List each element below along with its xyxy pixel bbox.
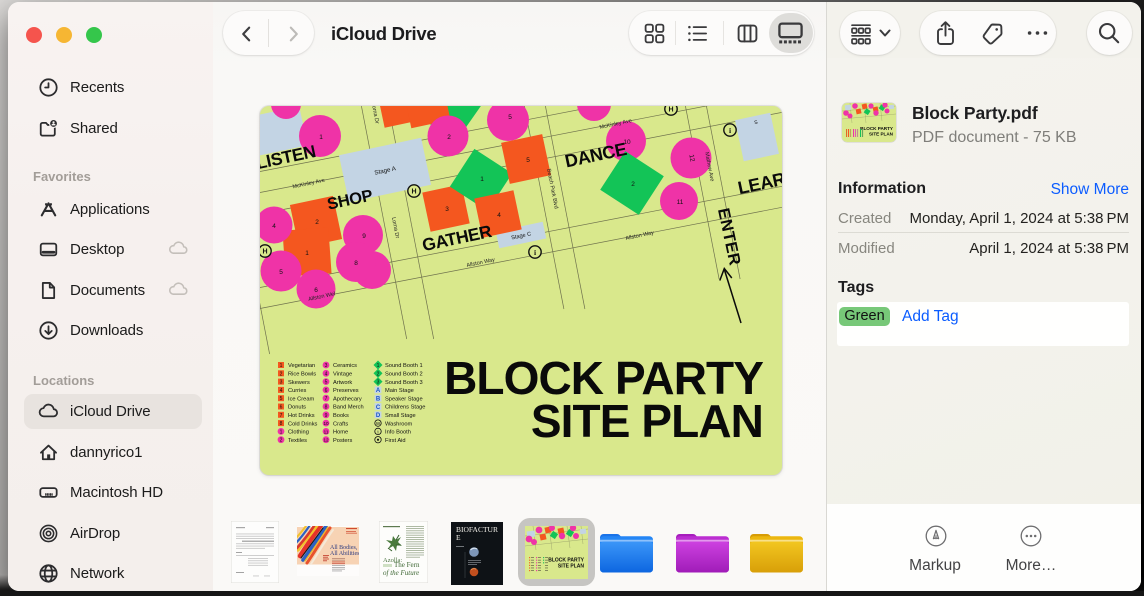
svg-text:Skewers: Skewers <box>288 380 310 386</box>
svg-text:E: E <box>456 533 461 542</box>
svg-text:H: H <box>411 189 416 196</box>
svg-text:i: i <box>534 248 536 257</box>
svg-text:Donuts: Donuts <box>288 405 306 411</box>
svg-text:Sound Booth 1: Sound Booth 1 <box>385 363 423 369</box>
svg-text:SITE PLAN: SITE PLAN <box>531 395 763 447</box>
svg-text:Sound Booth 2: Sound Booth 2 <box>385 372 423 378</box>
svg-text:First Aid: First Aid <box>385 438 406 444</box>
svg-text:Apothecary: Apothecary <box>333 396 362 402</box>
svg-text:Info Booth: Info Booth <box>385 430 411 436</box>
svg-text:Curries: Curries <box>288 388 306 394</box>
svg-text:6: 6 <box>325 388 328 394</box>
svg-text:W: W <box>376 421 381 426</box>
svg-text:12: 12 <box>323 438 329 443</box>
svg-text:Hot Drinks: Hot Drinks <box>288 413 315 419</box>
svg-text:5: 5 <box>280 396 283 402</box>
svg-text:Crafts: Crafts <box>333 421 348 427</box>
svg-text:BLOCK PARTY: BLOCK PARTY <box>860 126 893 131</box>
svg-text:7: 7 <box>325 396 328 402</box>
svg-text:orna Dr: orna Dr <box>370 106 379 125</box>
svg-text:8: 8 <box>325 405 328 411</box>
svg-text:2: 2 <box>631 181 635 188</box>
svg-text:11: 11 <box>677 199 684 206</box>
svg-text:Lorna Dr: Lorna Dr <box>390 217 400 239</box>
svg-text:Rice Bowls: Rice Bowls <box>288 372 316 378</box>
svg-text:5: 5 <box>279 269 283 276</box>
svg-text:1: 1 <box>280 363 283 369</box>
svg-text:1: 1 <box>280 429 283 435</box>
svg-text:4: 4 <box>280 388 283 394</box>
svg-text:All Abilities: All Abilities <box>330 551 359 557</box>
svg-text:Band Merch: Band Merch <box>333 405 364 411</box>
svg-text:6: 6 <box>314 287 318 294</box>
svg-text:H: H <box>668 107 673 114</box>
svg-text:LEARN: LEARN <box>736 166 782 198</box>
svg-text:2: 2 <box>377 371 380 377</box>
svg-text:5: 5 <box>325 380 328 386</box>
svg-text:3: 3 <box>377 380 380 386</box>
svg-text:A: A <box>376 388 381 394</box>
svg-text:BIOFACTUR: BIOFACTUR <box>456 525 498 534</box>
svg-text:3: 3 <box>280 380 283 386</box>
svg-text:Posters: Posters <box>333 438 352 444</box>
svg-text:Artwork: Artwork <box>333 380 352 386</box>
svg-text:8: 8 <box>280 421 283 427</box>
svg-text:4: 4 <box>325 371 328 377</box>
svg-text:Ice Cream: Ice Cream <box>288 396 314 402</box>
svg-text:2: 2 <box>315 219 319 226</box>
svg-text:Washroom: Washroom <box>385 421 413 427</box>
svg-text:2: 2 <box>447 134 451 141</box>
svg-text:H: H <box>262 249 267 256</box>
svg-text:2: 2 <box>280 438 283 444</box>
svg-text:Vegetarian: Vegetarian <box>288 363 315 369</box>
svg-text:Speaker Stage: Speaker Stage <box>385 396 423 402</box>
svg-text:Childrens Stage: Childrens Stage <box>385 405 425 411</box>
svg-text:The Fern: The Fern <box>394 561 420 569</box>
svg-text:Books: Books <box>333 413 349 419</box>
svg-text:1: 1 <box>319 134 323 141</box>
svg-text:McKinley Ave: McKinley Ave <box>292 178 325 191</box>
svg-text:B: B <box>376 397 381 403</box>
svg-text:Vintage: Vintage <box>333 372 352 378</box>
svg-text:3: 3 <box>325 363 328 369</box>
svg-text:Beach Park Blvd: Beach Park Blvd <box>545 168 559 209</box>
svg-text:C: C <box>376 405 381 411</box>
svg-text:2: 2 <box>280 371 283 377</box>
svg-text:7: 7 <box>280 413 283 419</box>
svg-text:i: i <box>729 126 731 135</box>
svg-text:5: 5 <box>508 114 512 121</box>
svg-text:9: 9 <box>325 413 328 419</box>
svg-text:5: 5 <box>526 157 530 164</box>
svg-text:1: 1 <box>480 176 484 183</box>
svg-text:Sound Booth 3: Sound Booth 3 <box>385 380 423 386</box>
svg-text:6: 6 <box>280 405 283 411</box>
svg-text:Small Stage: Small Stage <box>385 413 416 419</box>
svg-text:10: 10 <box>323 421 329 426</box>
svg-text:Cold Drinks: Cold Drinks <box>288 421 318 427</box>
svg-text:of the Future: of the Future <box>383 569 419 577</box>
svg-text:4: 4 <box>272 223 276 230</box>
svg-text:SITE PLAN: SITE PLAN <box>869 132 894 137</box>
svg-text:3: 3 <box>445 206 449 213</box>
svg-text:11: 11 <box>324 429 329 434</box>
svg-text:Ceramics: Ceramics <box>333 363 357 369</box>
svg-text:SITE PLAN: SITE PLAN <box>558 564 585 570</box>
svg-text:Textiles: Textiles <box>288 438 307 444</box>
svg-text:Allston Way: Allston Way <box>466 257 496 269</box>
svg-text:Allston Way: Allston Way <box>625 230 655 242</box>
svg-text:SHOP: SHOP <box>326 186 375 213</box>
svg-text:Home: Home <box>333 430 348 436</box>
svg-text:8: 8 <box>354 260 358 267</box>
svg-text:D: D <box>376 413 381 419</box>
svg-text:1: 1 <box>305 250 309 257</box>
svg-text:9: 9 <box>362 233 366 240</box>
svg-text:Preserves: Preserves <box>333 388 359 394</box>
svg-text:Main Stage: Main Stage <box>385 388 414 394</box>
svg-text:1: 1 <box>377 363 380 369</box>
svg-text:4: 4 <box>497 212 501 219</box>
svg-text:Clothing: Clothing <box>288 430 309 436</box>
